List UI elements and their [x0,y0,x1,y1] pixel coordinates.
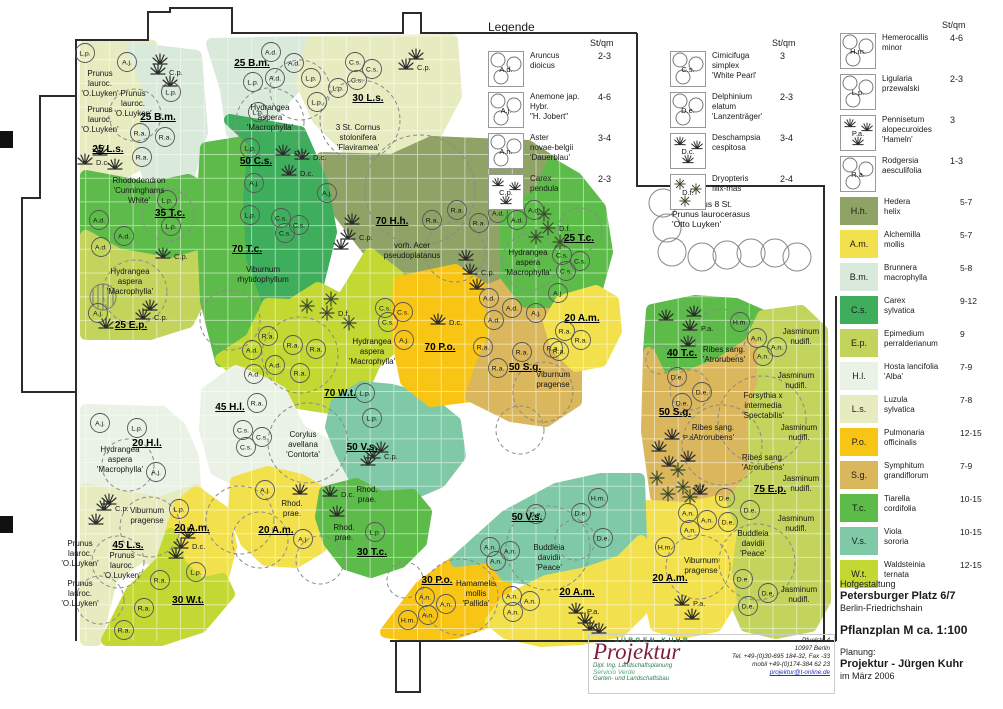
legend-swatch-row: P.o.Pulmonariaofficinalis12-15 [840,428,1000,456]
legend-swatch-row: V.s.Violasororia10-15 [840,527,1000,555]
logo-mobile: mobil +49-(0)174-384 62 23 [723,661,830,669]
legend-symbol-icon: C.s. [671,52,705,86]
quantity-label: 75 E.p. [754,484,786,495]
plant-symbol-label: D.f. [694,483,706,492]
logo-brand: Projektur [593,642,723,662]
plant-abbr: C.s. [382,320,394,327]
legend-plant-name: Hemerocallisminor [876,33,948,53]
color-swatch: S.g. [840,461,878,489]
plan-title: Pflanzplan M ca. 1:100 [840,624,1000,636]
legend-row: D.e.Delphiniumelatum'Lanzenträger'2-3 [670,92,838,128]
plant-abbr: A.d. [511,218,523,225]
quantity-label: 20 A.m. [564,313,599,324]
legend-stqm: 7-9 [960,461,972,471]
legend-plant-name: Asternovae-belgii'Dauerblau' [524,133,596,163]
legend-plant-name: Rodgersiaaesculifolia [876,156,948,176]
legend-abbr: R.a. [851,170,865,179]
plant-abbr: A.n. [504,549,516,556]
plant-abbr: C.s. [293,223,305,230]
legend-stqm: 5-8 [960,263,972,273]
plant-symbol-label: D.f. [338,309,350,318]
plant-abbr: C.s. [275,216,287,223]
legend-stqm: 5-7 [960,197,972,207]
legend-stqm: 2-3 [948,74,963,84]
legend-abbr: A.n. [499,147,512,156]
quantity-label: 50 S.g. [659,407,691,418]
legend-plant-name: Hederahelix [878,197,960,217]
legend-unit-header-row: St/qm [840,20,1000,30]
quantity-label: 30 W.t. [172,595,204,606]
plant-abbr: L.p. [161,198,172,205]
plant-abbr: A.d. [488,318,500,325]
legend-row: R.a.Rodgersiaaesculifolia1-3 [840,156,1000,192]
plant-abbr: A.n. [440,602,452,609]
plant-abbr: A.n. [771,345,783,352]
plant-abbr: R.a. [473,221,486,228]
plant-name-label: Ribes sang.'Atrorubens' [742,453,785,472]
plan-date: im März 2006 [840,670,1000,682]
legend-plant-name: Deschampsiacespitosa [706,133,778,153]
legend-row: A.d.Aruncusdioicus2-3 [488,51,656,87]
plant-abbr: A.d. [118,234,130,241]
legend-symbol-icon: A.j. [489,93,523,127]
plant-symbol-label: C.p. [174,252,188,261]
fern-icon [671,463,685,477]
legend-unit-header-row: St/qm [488,38,656,48]
plant-abbr: A.n. [507,610,519,617]
plant-abbr: A.n. [484,545,496,552]
plant-abbr: C.s. [351,78,363,85]
plant-abbr: C.s. [256,435,268,442]
plant-abbr: A.d. [95,245,107,252]
legend-abbr: D.e. [681,106,695,115]
legend-row: C.p.Carexpendula2-3 [488,174,656,210]
planner-name: Projektur - Jürgen Kuhr [840,658,1000,670]
plant-name-label: 3 St. Cornusstolonifera'Flaviramea' [336,123,380,152]
planning-label: Planung: [840,646,1000,658]
plant-abbr: R.a. [559,329,572,336]
legend-plant-name: Violasororia [878,527,960,547]
plant-abbr: R.a. [159,135,172,142]
plant-abbr: C.s. [574,259,586,266]
legend-symbol-box: D.f. [670,174,706,210]
plant-abbr: L.p. [244,146,255,153]
legend-column: St/qmC.s.Cimicifugasimplex'White Pearl'3… [670,38,838,215]
plant-abbr: D.e. [696,390,709,397]
plant-symbol-label: P.a. [587,607,599,616]
legend-symbol-box: C.s. [670,51,706,87]
plant-abbr: D.e. [737,577,750,584]
quantity-label: 40 T.c. [667,348,697,359]
quantity-label: 50 C.s. [240,156,272,167]
legend-symbol-icon: D.c. [671,134,705,168]
quantity-label: 70 P.o. [425,342,456,353]
plant-abbr: D.e. [575,511,588,518]
project-category: Hofgestaltung [840,578,1000,590]
legend-stqm: 9-12 [960,296,977,306]
legend-plant-name: Waldsteiniaternata [878,560,960,580]
legend-abbr: H.m. [850,47,866,56]
legend-stqm: 3 [948,115,955,125]
legend-row: C.s.Cimicifugasimplex'White Pearl'3 [670,51,838,87]
plant-abbr: A.d. [269,76,281,83]
plant-abbr: R.a. [136,155,149,162]
legend-plant-name: Tiarellacordifolia [878,494,960,514]
plant-symbol-label: C.p. [384,452,398,461]
plant-symbol-label: D.c. [313,153,326,162]
legend-row: A.j.Anemone jap.Hybr."H. Jobert"4-6 [488,92,656,128]
plant-abbr: D.e. [671,375,684,382]
plant-abbr: L.p. [244,213,255,220]
legend-swatch-row: L.s.Luzulasylvatica7-8 [840,395,1000,423]
legend-abbr: C.s. [681,65,694,74]
plant-abbr: L.p. [165,90,176,97]
legend-row: L.p.Ligulariaprzewalski2-3 [840,74,1000,110]
plant-symbol-label: D.c. [192,542,205,551]
legend-symbol-icon: L.p. [841,75,875,109]
legend-row: H.m.Hemerocallisminor4-6 [840,33,1000,69]
legend-plant-name: Ligulariaprzewalski [876,74,948,94]
plant-abbr: L.p. [311,100,322,107]
legend-plant-name: Alchemillamollis [878,230,960,250]
legend-plant-name: Hosta lancifolia'Alba' [878,362,960,382]
quantity-label: 50 S.g. [509,362,541,373]
fern-icon [300,299,314,313]
plant-abbr: D.e. [597,536,610,543]
plant-abbr: A.n. [757,354,769,361]
plant-symbol-label: C.p. [417,63,431,72]
legend-plant-name: Pennisetumalopecuroides'Hameln' [876,115,948,145]
plant-symbol-label: D.c. [341,490,354,499]
fern-icon [683,490,697,504]
pflanzplan-page: C.p.D.c.C.p.C.p.C.p.C.p.C.p.D.c.D.c.D.c.… [0,0,1003,709]
legend-symbol-box: D.c. [670,133,706,169]
plant-abbr: C.s. [237,428,249,435]
legend-abbr: C.p. [499,188,513,197]
quantity-label: 70 T.c. [232,244,262,255]
logo-line3: Garten- und Landschaftsbau [593,676,723,682]
plant-abbr: A.d. [506,306,518,313]
plant-name-label: Rhod.prae. [333,523,354,542]
building-wall [22,96,76,392]
legend-stqm: 7-9 [960,362,972,372]
plant-abbr: R.a. [134,131,147,138]
plant-abbr: R.a. [262,334,275,341]
plant-abbr: R.a. [516,350,529,357]
color-swatch: E.p. [840,329,878,357]
legend-symbol-icon: H.m. [841,34,875,68]
quantity-label: 30 T.c. [357,547,387,558]
legend-column: St/qmA.d.Aruncusdioicus2-3A.j.Anemone ja… [488,38,656,215]
plant-abbr: R.a. [154,578,167,585]
plant-abbr: L.p. [366,416,377,423]
fern-icon [342,316,356,330]
legend-swatch-row: S.g.Symphitumgrandiflorum7-9 [840,461,1000,489]
quantity-label: 20 A.m. [258,525,293,536]
plant-symbol-label: C.p. [115,504,129,513]
legend-plant-name: Aruncusdioicus [524,51,596,71]
legend-row: D.f.Dryopterisfilix-mas2-4 [670,174,838,210]
project-district: Berlin-Friedrichshain [840,602,1000,614]
plant-abbr: L.p. [369,530,380,537]
plant-name-label: Viburnumpragense [130,506,164,525]
legend-stqm: 12-15 [960,428,982,438]
color-swatch: V.s. [840,527,878,555]
plant-abbr: R.a. [553,349,566,356]
plant-abbr: C.s. [366,67,378,74]
plant-abbr: C.s. [556,253,568,260]
unit-header: St/qm [590,38,614,48]
wall-block [0,516,13,533]
legend-symbol-icon: R.a. [841,157,875,191]
legend-symbol-icon: P.a. [841,116,875,150]
plant-abbr: A.n. [682,511,694,518]
plant-abbr: A.j. [298,537,308,544]
plant-abbr: R.a. [575,338,588,345]
legend-stqm: 10-15 [960,527,982,537]
legend-symbol-box: A.d. [488,51,524,87]
legend-stqm: 1-3 [948,156,963,166]
legend-stqm: 10-15 [960,494,982,504]
plant-abbr: H.m. [591,496,605,503]
legend-stqm: 3 [778,51,785,61]
plant-abbr: A.n. [524,599,536,606]
plant-abbr: R.a. [310,347,323,354]
plant-abbr: A.d. [248,372,260,379]
plant-abbr: A.n. [684,528,696,535]
quantity-label: 25 B.m. [140,112,176,123]
fern-icon [650,471,664,485]
plant-name-label: Viburnumpragense [684,556,718,575]
plant-abbr: A.d. [269,363,281,370]
quantity-label: 70 W.t. [324,388,356,399]
plant-abbr: L.p. [131,426,142,433]
plant-abbr: H.m. [658,545,672,552]
plant-name-label: Ribes sang.'Atrorubens' [703,345,746,364]
legend-plant-name: Luzulasylvatica [878,395,960,415]
plant-name-label: Rhod.prae. [356,485,377,504]
legend-swatch-row: B.m.Brunneramacrophylla5-8 [840,263,1000,291]
plant-abbr: C.s. [379,306,391,313]
legend-symbol-box: C.p. [488,174,524,210]
project-name: Petersburger Platz 6/7 [840,590,1000,602]
plant-abbr: A.n. [701,518,713,525]
plant-abbr: R.a. [251,401,264,408]
quantity-label: 45 H.l. [215,402,245,413]
legend-stqm: 2-3 [778,92,793,102]
quantity-label: 25 T.c. [564,233,594,244]
color-swatch: C.s. [840,296,878,324]
legend-abbr: D.f. [682,188,694,197]
legend-stqm: 4-6 [948,33,963,43]
legend-symbol-icon: C.p. [489,175,523,209]
plant-abbr: D.e. [762,591,775,598]
fern-icon [324,292,338,306]
logo-line2: Servicio Verde [593,669,723,676]
legend-stqm: 9 [960,329,965,339]
plant-abbr: D.e. [742,604,755,611]
legend-swatch-row: C.s.Carexsylvatica9-12 [840,296,1000,324]
plant-abbr: C.s. [560,269,572,276]
plant-abbr: L.p. [332,86,343,93]
wall-block [0,131,13,148]
plant-abbr: A.j. [95,421,105,428]
plant-abbr: A.n. [422,613,434,620]
legend-panel: Legende St/qmA.d.Aruncusdioicus2-3A.j.An… [488,20,838,215]
quantity-label: 30 P.o. [422,575,453,586]
plant-abbr: R.a. [477,345,490,352]
legend-swatch-row: A.m.Alchemillamollis5-7 [840,230,1000,258]
logo-contact: Pfuelstr. 4 10997 Berlin Tel. +49-(0)30-… [723,637,830,691]
plant-abbr: C.s. [240,445,252,452]
fern-icon [661,487,675,501]
plant-abbr: R.a. [492,366,505,373]
plant-abbr: A.n. [751,336,763,343]
legend-symbol-box: A.n. [488,133,524,169]
legend-plant-name: Carexpendula [524,174,596,194]
plant-abbr: A.d. [288,61,300,68]
color-swatch: A.m. [840,230,878,258]
legend-abbr: L.p. [852,88,865,97]
legend-swatch-row: H.h.Hederahelix5-7 [840,197,1000,225]
plant-abbr: R.a. [294,371,307,378]
plant-abbr: C.s. [349,60,361,67]
legend-stqm: 3-4 [596,133,611,143]
legend-abbr: D.c. [681,147,694,156]
legend-row: A.n.Asternovae-belgii'Dauerblau'3-4 [488,133,656,169]
plant-abbr: A.j. [151,470,161,477]
legend-symbol-icon: D.e. [671,93,705,127]
quantity-label: 35 T.c. [155,208,185,219]
company-logo: Jürgen Kuhr Projektur Dipl. Ing. Landsch… [588,634,835,694]
plant-abbr: R.a. [138,606,151,613]
plant-abbr: L.p. [190,570,201,577]
logo-address1: Pfuelstr. 4 [723,637,830,645]
legend-stqm: 12-15 [960,560,982,570]
unit-header: St/qm [772,38,796,48]
quantity-label: 20 A.m. [652,573,687,584]
legend-stqm: 3-4 [778,133,793,143]
color-swatch: L.s. [840,395,878,423]
fern-icon [529,230,543,244]
logo-address2: 10997 Berlin [723,645,830,653]
legend-stqm: 5-7 [960,230,972,240]
legend-abbr: A.d. [499,65,512,74]
plant-abbr: A.j. [249,181,259,188]
legend-plant-name: Pulmonariaofficinalis [878,428,960,448]
quantity-label: 20 A.m. [559,587,594,598]
plant-name-label: Rhod.prae. [281,499,302,518]
plant-abbr: R.a. [426,218,439,225]
quantity-label: 45 L.s. [112,540,143,551]
plant-abbr: C.s. [397,310,409,317]
plant-abbr: D.e. [722,520,735,527]
plant-symbol-label: D.c. [449,318,462,327]
plant-symbol-label: D.c. [96,158,109,167]
logo-left: Jürgen Kuhr Projektur Dipl. Ing. Landsch… [593,637,723,691]
plant-symbol-label: D.f. [559,224,571,233]
legend-plant-name: Dryopterisfilix-mas [706,174,778,194]
plant-symbol-label: C.p. [169,68,183,77]
plant-symbol-label: P.a. [701,324,713,333]
plant-abbr: A.j. [260,488,270,495]
plant-abbr: L.p. [247,80,258,87]
color-swatch: H.l. [840,362,878,390]
quantity-label: 25 B.m. [234,58,270,69]
legend-row: D.c.Deschampsiacespitosa3-4 [670,133,838,169]
quantity-label: 25 E.p. [115,320,147,331]
plant-symbol-label: C.p. [481,268,495,277]
unit-header: St/qm [942,20,966,30]
legend-stqm: 2-3 [596,174,611,184]
plant-abbr: A.d. [265,50,277,57]
legend-unit-header-row: St/qm [670,38,838,48]
plant-abbr: L.p. [165,224,176,231]
building-wall [396,641,420,692]
plant-abbr: A.j. [399,338,409,345]
legend-swatch-row: T.c.Tiarellacordifolia10-15 [840,494,1000,522]
plant-abbr: A.j. [531,311,541,318]
plant-abbr: A.j. [553,291,563,298]
quantity-label: 25 L.s. [92,144,123,155]
plant-abbr: A.d. [246,348,258,355]
legend-stqm: 2-3 [596,51,611,61]
plant-name-label: Corylusavellana'Contorta' [286,430,320,459]
legend-plant-name: Carexsylvatica [878,296,960,316]
legend-title: Legende [488,20,838,34]
logo-email-link[interactable]: projektur@t-online.de [723,669,830,677]
plant-abbr: D.e. [719,496,732,503]
plant-abbr: L.p. [79,51,90,58]
legend-symbol-box: A.j. [488,92,524,128]
legend-plant-name: Brunneramacrophylla [878,263,960,283]
quantity-label: 70 H.h. [376,216,409,227]
legend-stqm: 4-6 [596,92,611,102]
plant-abbr: A.n. [490,559,502,566]
title-block: Hofgestaltung Petersburger Platz 6/7 Ber… [840,578,1000,682]
legend-plant-name: Symphitumgrandiflorum [878,461,960,481]
legend-plant-name: Cimicifugasimplex'White Pearl' [706,51,778,81]
plant-abbr: L.p. [173,507,184,514]
legend-row: P.a.Pennisetumalopecuroides'Hameln'3 [840,115,1000,151]
legend-symbol-icon: A.d. [489,52,523,86]
legend-plant-name: Anemone jap.Hybr."H. Jobert" [524,92,596,122]
legend-abbr: P.a. [852,129,864,138]
plant-abbr: R.a. [451,208,464,215]
hedge-circle [658,238,686,266]
legend-symbol-box: L.p. [840,74,876,110]
legend-stqm: 7-8 [960,395,972,405]
legend-symbol-box: H.m. [840,33,876,69]
plant-abbr: D.e. [744,508,757,515]
plant-abbr: A.j. [122,60,132,67]
plant-name-label: Forsythia xintermedia'Spectabilis' [742,391,784,420]
legend-symbol-box: D.e. [670,92,706,128]
legend-abbr: A.j. [501,106,512,115]
logo-phone: Tel. +49-(0)30-695 184-32, Fax -33 [723,653,830,661]
plant-symbol-label: C.p. [359,233,373,242]
quantity-label: 20 A.m. [174,523,209,534]
plant-abbr: A.d. [483,296,495,303]
legend-plant-name: Epimediumperralderianum [878,329,960,349]
plant-abbr: H.m. [733,320,747,327]
legend-symbol-box: P.a. [840,115,876,151]
quantity-label: 30 L.s. [352,93,383,104]
legend-swatch-row: E.p.Epimediumperralderianum9 [840,329,1000,357]
legend-plant-name: Delphiniumelatum'Lanzenträger' [706,92,778,122]
plant-abbr: H.m. [401,618,415,625]
quantity-label: 20 H.l. [132,438,162,449]
